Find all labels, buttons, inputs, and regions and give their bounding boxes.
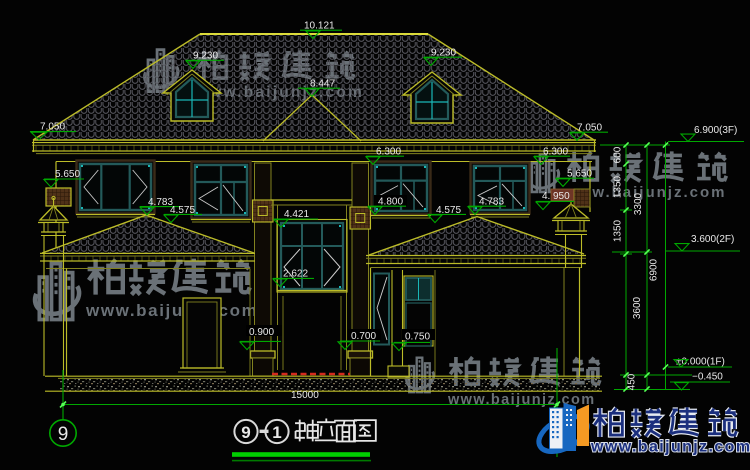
- svg-text:950: 950: [553, 191, 570, 202]
- svg-text:www.baijunjz.com: www.baijunjz.com: [85, 301, 258, 320]
- svg-text:4.: 4.: [542, 191, 550, 202]
- svg-text:−0.450: −0.450: [692, 372, 723, 383]
- svg-text:0.900: 0.900: [249, 327, 274, 338]
- svg-text:1350: 1350: [613, 175, 624, 198]
- svg-text:5.650: 5.650: [55, 169, 80, 180]
- svg-text:1350: 1350: [613, 219, 624, 242]
- svg-text:7.050: 7.050: [40, 122, 65, 133]
- svg-text:450: 450: [627, 373, 638, 390]
- svg-text:0.750: 0.750: [405, 332, 430, 343]
- svg-text:15000: 15000: [291, 390, 319, 401]
- svg-text:9: 9: [58, 424, 69, 445]
- svg-text:600: 600: [613, 146, 624, 163]
- svg-text:3600: 3600: [632, 296, 643, 319]
- svg-text:1: 1: [272, 423, 281, 442]
- svg-text:6900: 6900: [649, 258, 660, 281]
- svg-text:6.900(3F): 6.900(3F): [694, 125, 737, 136]
- svg-text:4.421: 4.421: [284, 209, 309, 220]
- svg-text:9: 9: [241, 423, 250, 442]
- svg-text:±0.000(1F): ±0.000(1F): [676, 357, 725, 368]
- svg-text:3.600(2F): 3.600(2F): [691, 234, 734, 245]
- svg-text:www.baijunjz.com: www.baijunjz.com: [590, 439, 750, 456]
- svg-text:3300: 3300: [633, 192, 644, 215]
- svg-text:0.700: 0.700: [351, 331, 376, 342]
